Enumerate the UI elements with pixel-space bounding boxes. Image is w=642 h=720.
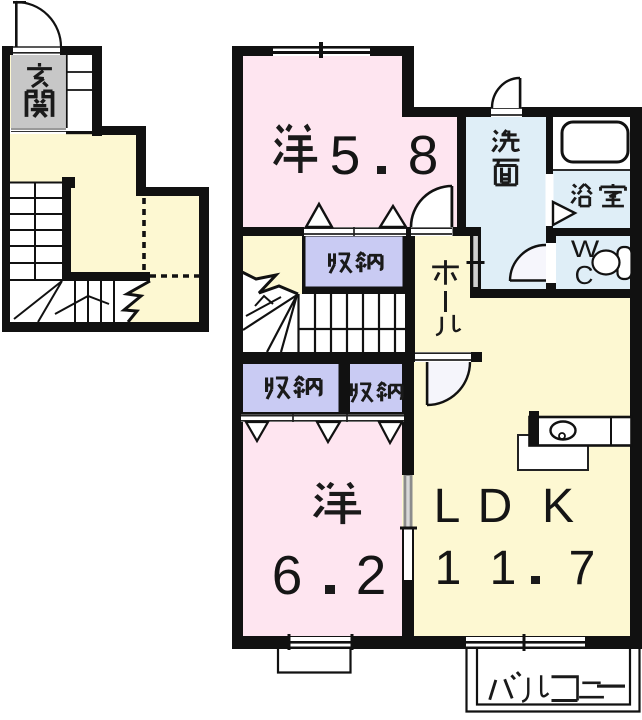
svg-text:1: 1 (435, 542, 462, 595)
svg-text:8: 8 (408, 124, 439, 186)
svg-text:1: 1 (490, 542, 517, 595)
svg-text:D: D (478, 480, 513, 533)
svg-text:L: L (434, 480, 461, 533)
svg-text:7: 7 (569, 542, 596, 595)
svg-text:5: 5 (330, 124, 361, 186)
svg-text:6: 6 (272, 544, 303, 606)
svg-text:K: K (542, 480, 574, 533)
svg-text:W: W (571, 235, 600, 262)
svg-text:2: 2 (356, 544, 387, 606)
svg-text:C: C (575, 260, 594, 290)
